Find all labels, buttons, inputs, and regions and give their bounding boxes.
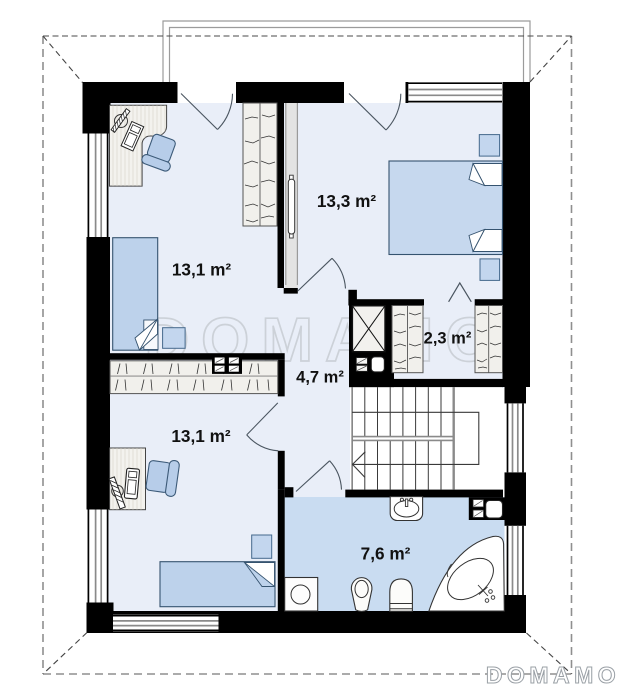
- svg-text:2,3 m²: 2,3 m²: [424, 330, 472, 348]
- svg-text:13,1 m²: 13,1 m²: [171, 426, 231, 446]
- svg-text:13,3 m²: 13,3 m²: [317, 191, 377, 211]
- svg-text:7,6 m²: 7,6 m²: [361, 544, 411, 564]
- svg-text:DOMAMO: DOMAMO: [486, 662, 620, 688]
- svg-text:4,7 m²: 4,7 m²: [296, 369, 344, 387]
- svg-text:13,1 m²: 13,1 m²: [172, 260, 232, 280]
